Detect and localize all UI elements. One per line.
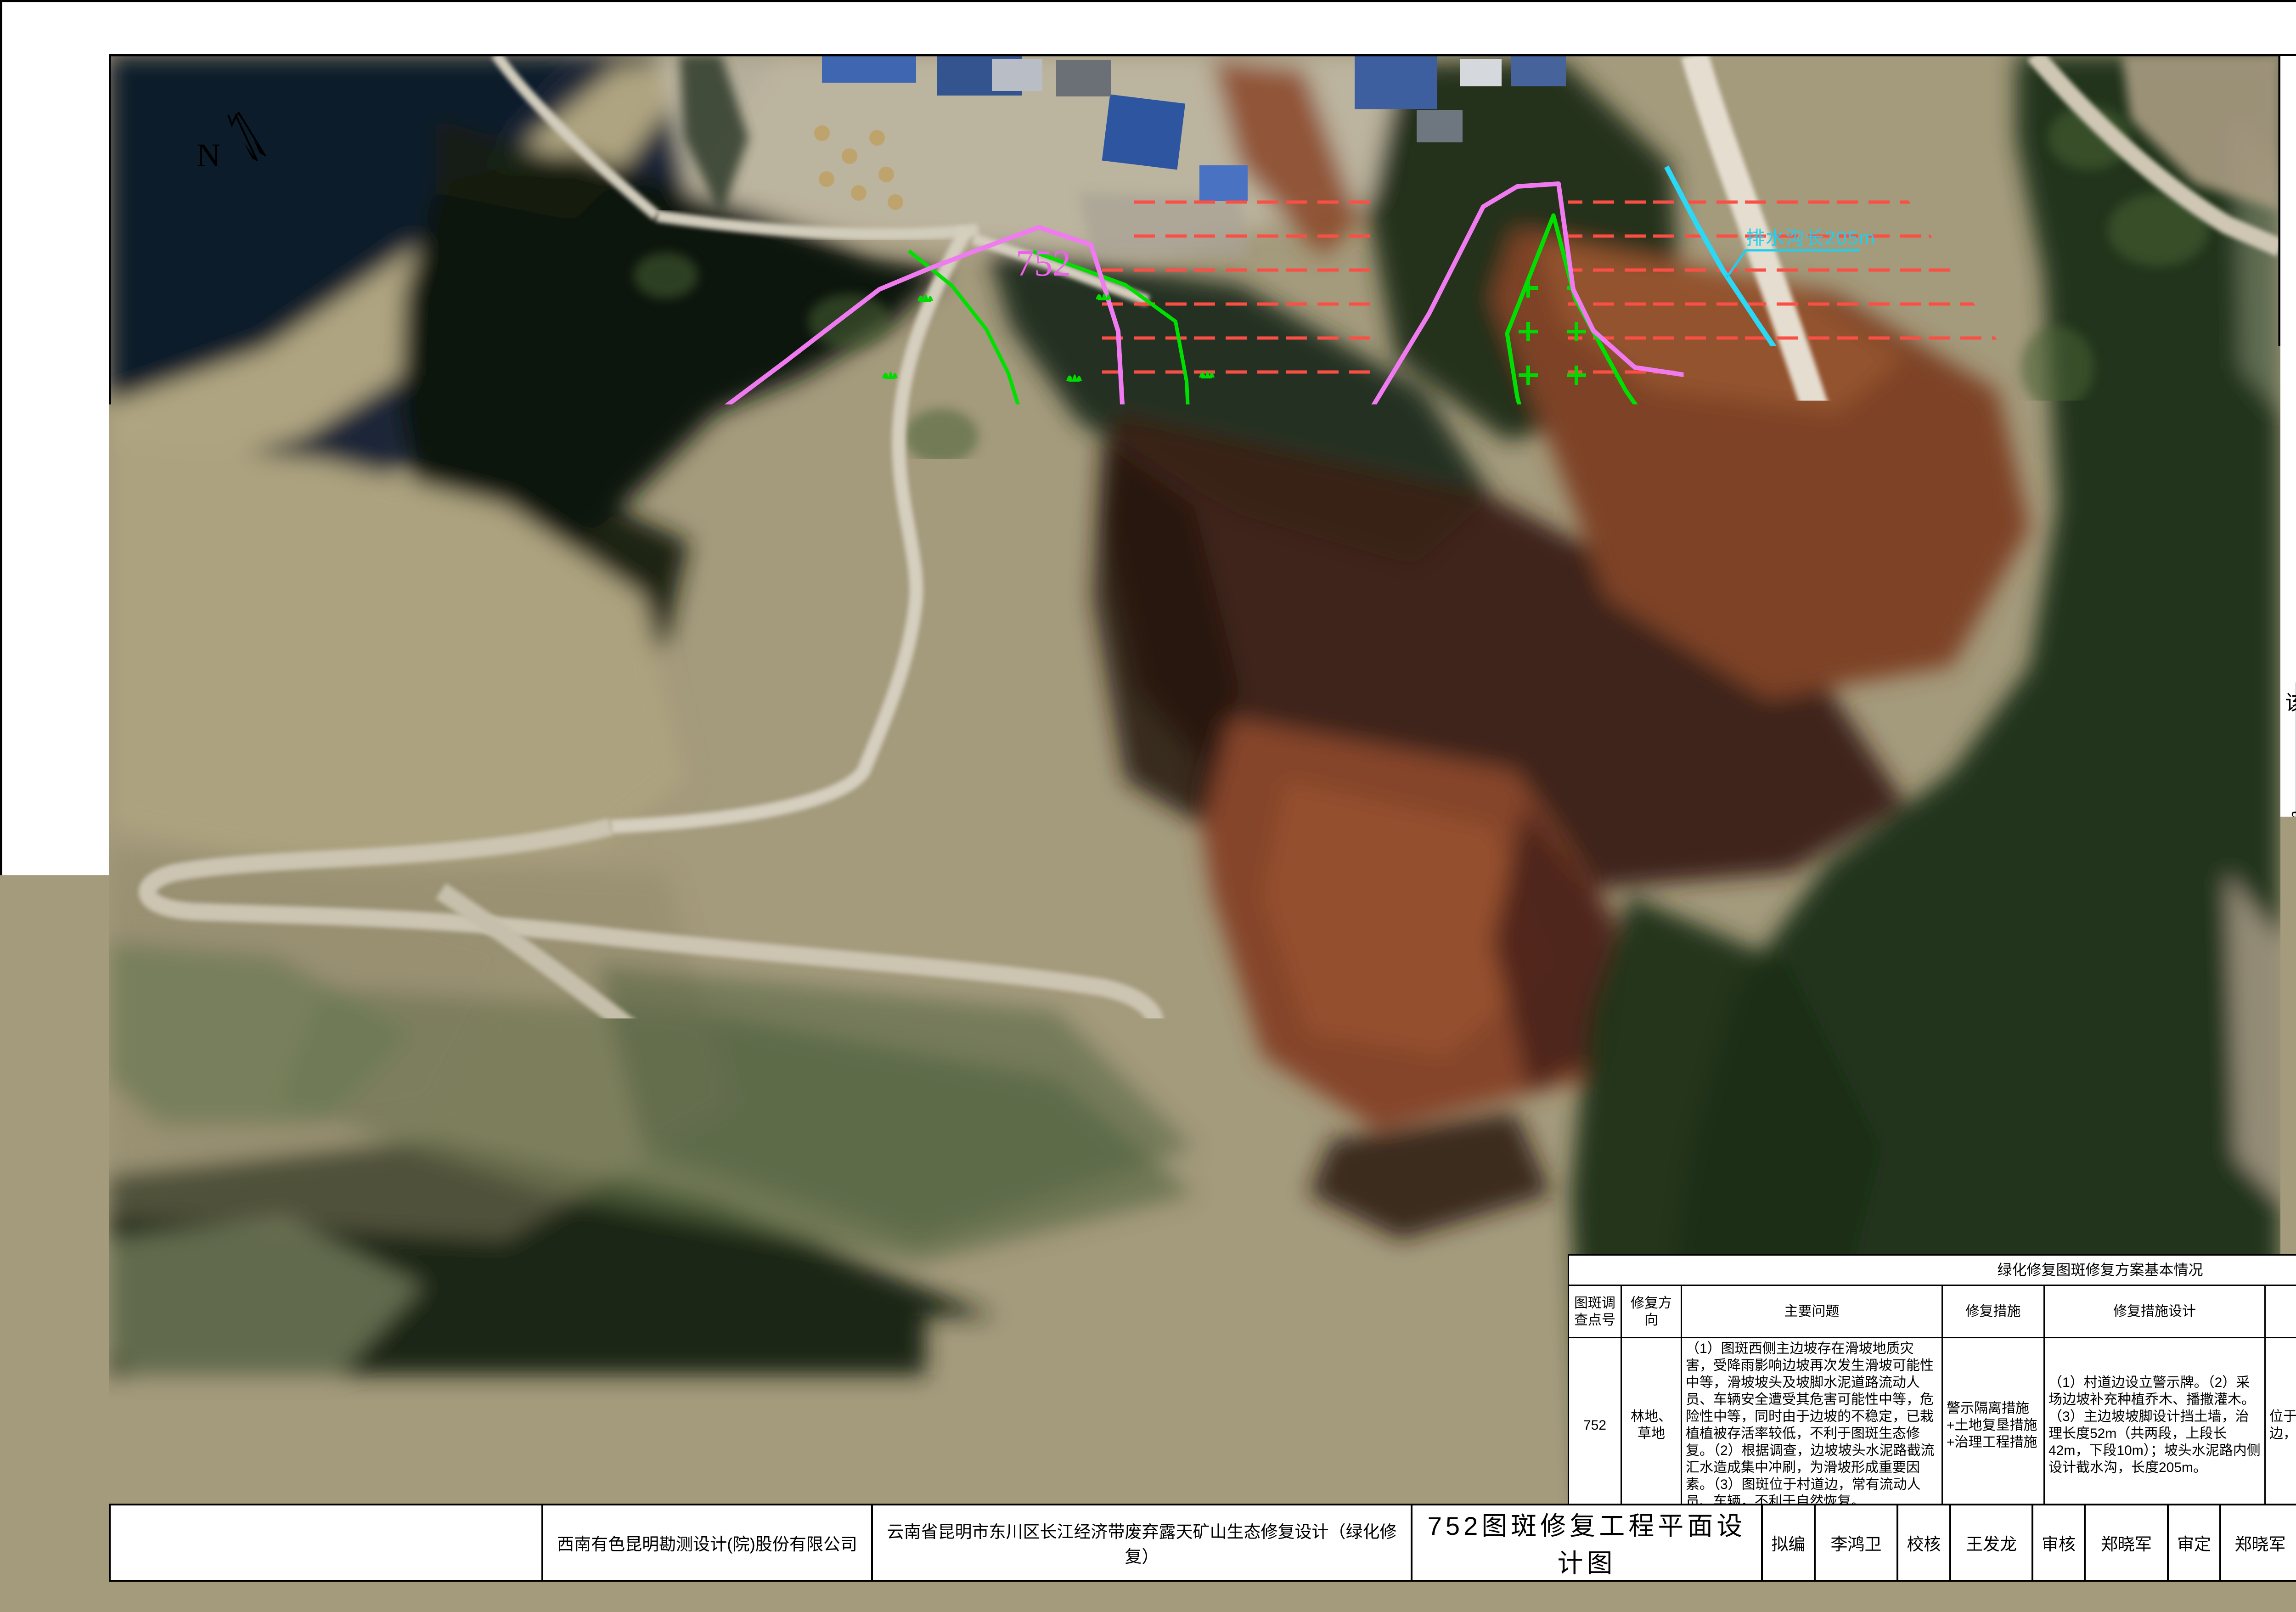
svg-text:N: N [197,137,220,174]
svg-text:1m: 1m [2285,811,2296,834]
svg-text:该图斑修复为乔灌木林地林草平面配置图: 该图斑修复为乔灌木林地林草平面配置图 [2285,692,2296,714]
svg-text:挡土墙长10m: 挡土墙长10m [1172,721,1279,740]
svg-text:挡土墙长42m: 挡土墙长42m [1203,821,1311,840]
svg-text:排水沟长205m: 排水沟长205m [1746,227,1876,248]
svg-text:752: 752 [1016,243,1071,284]
svg-text:水池3m*2m*1m: 水池3m*2m*1m [803,1065,959,1088]
